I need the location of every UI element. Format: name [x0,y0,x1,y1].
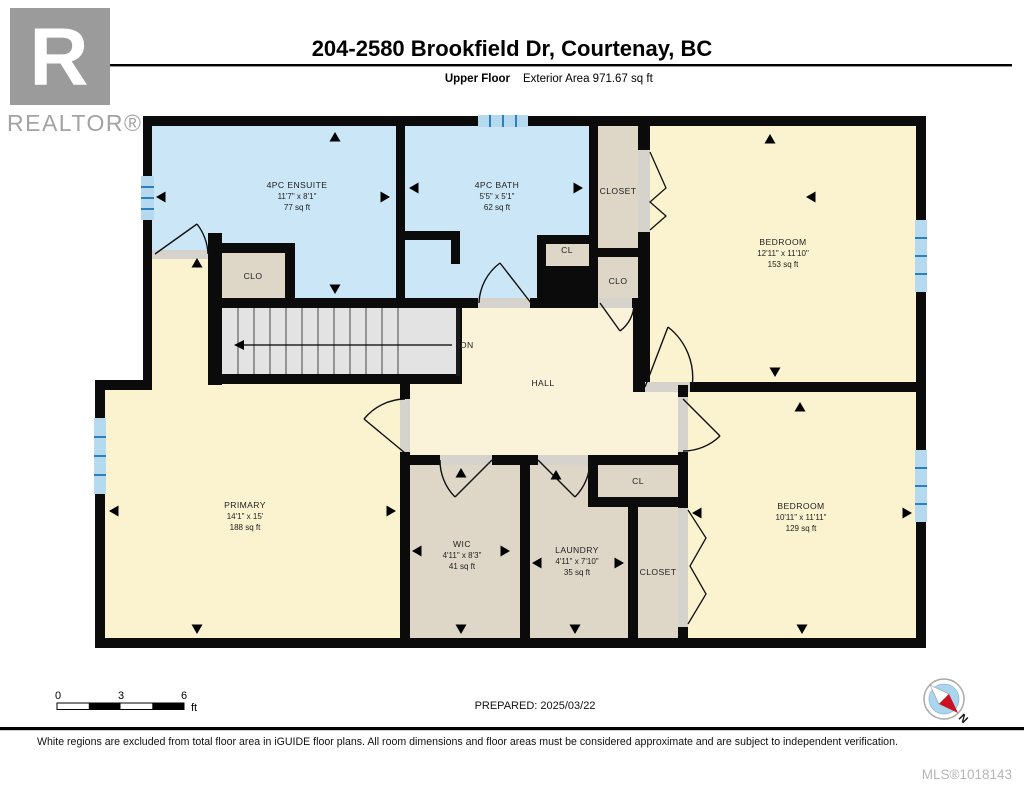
ensuite-window [141,176,154,220]
bath-label: 4PC BATH [475,180,520,190]
cl-mid-label: CL [561,245,573,255]
bath-dims: 5'5" x 5'1" [480,192,515,201]
bedroom-top-dims: 12'11" x 11'10" [757,249,809,258]
closet-bottom-bifold-threshold [678,508,688,627]
laundry-door-threshold [538,455,590,465]
bedroom-bottom-dims: 10'11" x 11'11" [776,513,827,522]
laundry-area: 35 sq ft [564,568,591,577]
closet-bottom-label: CLOSET [640,567,677,577]
clo-right-label: CLO [609,276,628,286]
header-divider [37,64,1012,66]
primary-area: 188 sq ft [230,523,261,532]
bath-area: 62 sq ft [484,203,511,212]
bedroom-top-window [915,220,927,292]
bedroom-top-area: 153 sq ft [768,260,799,269]
stairs-floor [222,308,456,376]
bedroom-bottom-area: 129 sq ft [786,524,817,533]
prepared-date: PREPARED: 2025/03/22 [475,700,596,712]
stairs-dn-label: DN [460,340,473,350]
scale-unit: ft [191,702,197,714]
ensuite-door-threshold [152,250,208,259]
floor-label: Upper Floor [445,73,511,85]
primary-window [94,418,106,494]
bedroom-bottom-door-threshold [678,397,688,452]
wic-dims: 4'11" x 8'3" [443,551,482,560]
floorplan-page: R REALTOR® 204-2580 Brookfield Dr, Court… [0,0,1024,791]
compass-icon: N [924,679,970,726]
ensuite-dims: 11'7" x 8'1" [278,192,317,201]
bedroom-bottom-window [915,450,927,522]
realtor-logo: R REALTOR® [7,8,142,136]
hall-label: HALL [531,378,554,388]
mls-number: MLS®1018143 [922,767,1012,782]
scale-tick-3: 3 [118,690,124,702]
exterior-area-label: Exterior Area 971.67 sq ft [523,73,654,85]
wic-label: WIC [453,539,471,549]
scale-tick-0: 0 [55,690,61,702]
stairs-edge [456,308,460,376]
primary-label: PRIMARY [224,500,266,510]
hall-floor-upper [462,308,633,384]
clo-left-label: CLO [244,271,263,281]
bath-window [478,115,528,127]
primary-door-threshold [400,399,410,452]
footer-divider [0,727,1024,730]
bedroom-bottom-label: BEDROOM [777,501,824,511]
page-title: 204-2580 Brookfield Dr, Courtenay, BC [312,36,713,61]
floorplan-canvas: R REALTOR® 204-2580 Brookfield Dr, Court… [0,0,1024,791]
cl-bottom-label: CL [632,476,644,486]
scale-bar: 0 3 6 ft [55,690,197,714]
ensuite-area: 77 sq ft [284,203,311,212]
scale-tick-6: 6 [181,690,187,702]
bedroom-top-label: BEDROOM [759,237,806,247]
closet-top-label: CLOSET [600,186,637,196]
bath-door-threshold [478,298,530,308]
footer-disclaimer: White regions are excluded from total fl… [37,736,898,748]
realtor-logo-label: REALTOR® [7,110,142,136]
laundry-label: LAUNDRY [555,545,599,555]
closet-top-bifold-threshold [638,150,650,232]
laundry-dims: 4'11" x 7'10" [555,557,598,566]
wic-door-threshold [440,455,492,465]
wic-area: 41 sq ft [449,562,476,571]
ensuite-label: 4PC ENSUITE [267,180,328,190]
hall-floor-lower [410,384,678,455]
primary-dims: 14'1" x 15' [227,512,264,521]
realtor-logo-r: R [29,12,88,103]
